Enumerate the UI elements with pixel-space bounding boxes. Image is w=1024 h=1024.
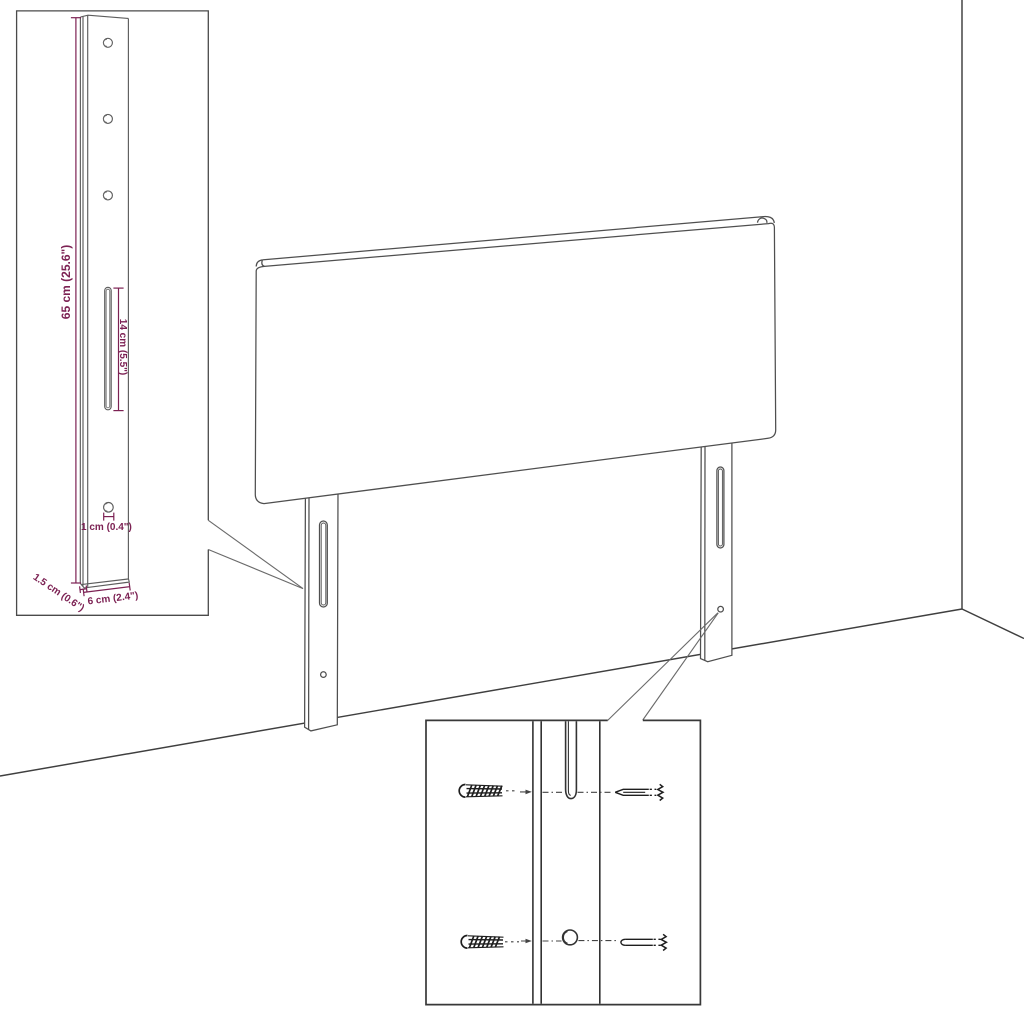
svg-text:6 cm (2.4"): 6 cm (2.4")	[87, 590, 139, 607]
svg-text:65 cm (25.6"): 65 cm (25.6")	[59, 245, 73, 319]
svg-text:14 cm (5.5"): 14 cm (5.5")	[117, 319, 128, 375]
svg-text:1.5 cm (0.6"): 1.5 cm (0.6")	[31, 572, 86, 614]
svg-text:1 cm (0.4"): 1 cm (0.4")	[81, 522, 132, 533]
